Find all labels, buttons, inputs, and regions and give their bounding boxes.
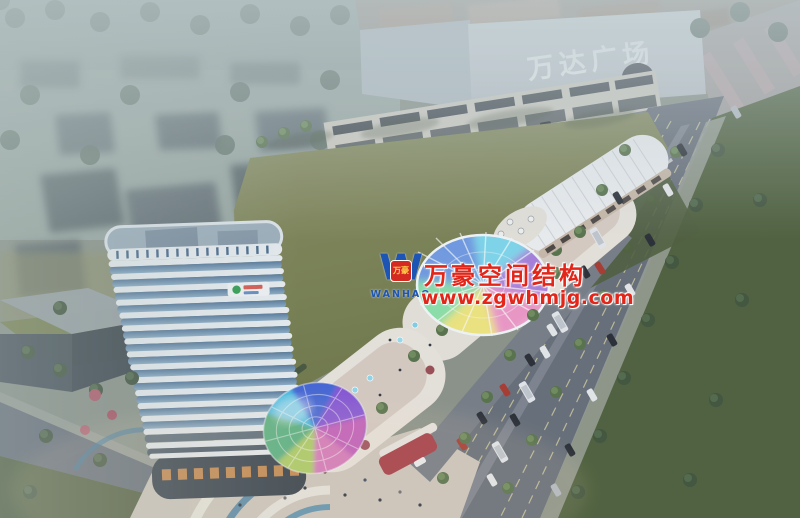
scene-canvas: 万达广场 xyxy=(0,0,800,518)
aerial-rendering: 万达广场 xyxy=(0,0,800,518)
